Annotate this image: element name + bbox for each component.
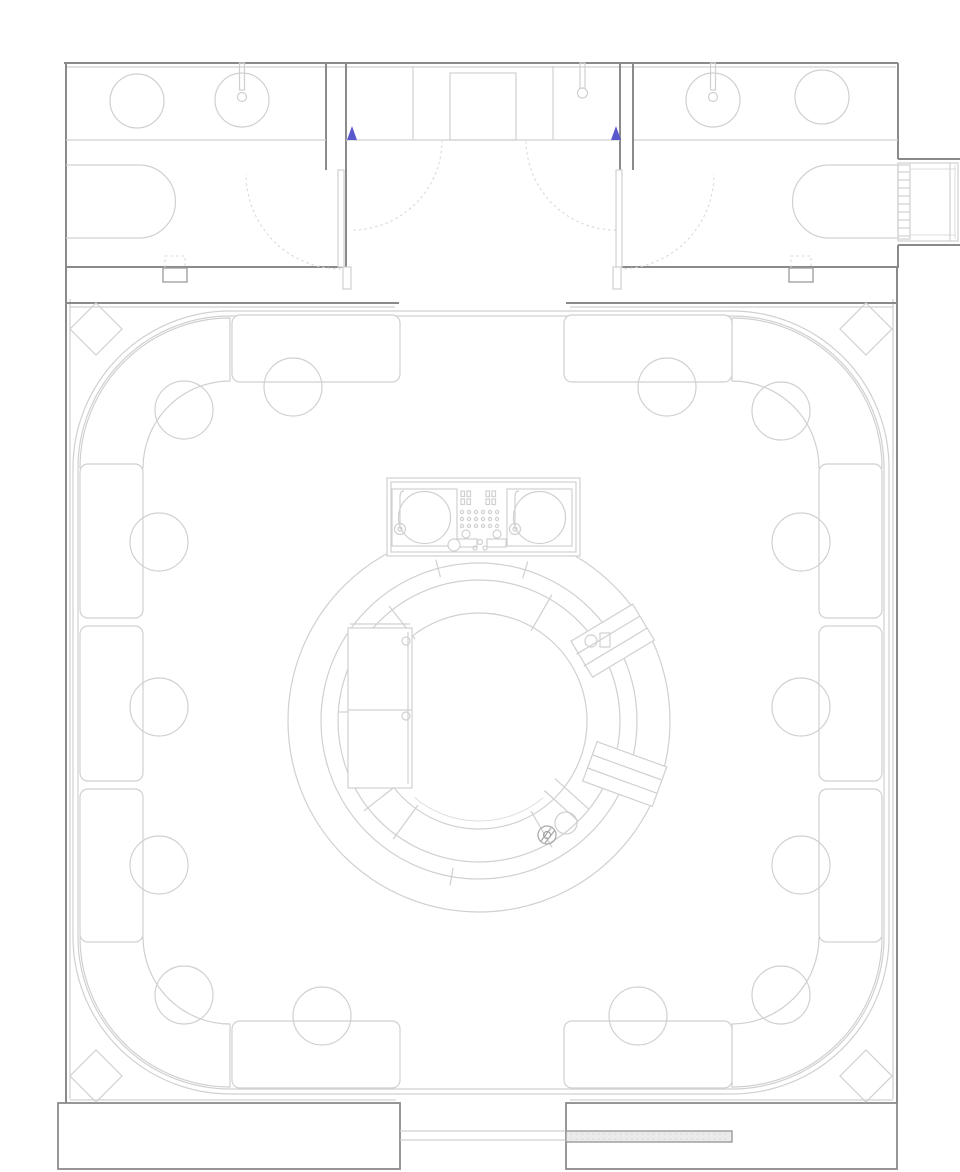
- back-bar-cabinet: [348, 628, 412, 788]
- floor-plan-page: [0, 0, 960, 1172]
- flip-counter-panel: [583, 742, 667, 807]
- dj-booth: [387, 478, 580, 556]
- shaft-box: [450, 73, 516, 140]
- stair-passage: [898, 159, 960, 245]
- corner-bench: [732, 318, 882, 468]
- bar-sink: [555, 812, 577, 834]
- wall-niche: [789, 268, 813, 282]
- door-swing-arc: [352, 140, 442, 230]
- door-leaf: [338, 170, 344, 267]
- bench-module: [80, 626, 143, 781]
- door-swing-arc: [619, 174, 714, 269]
- entrance-threshold: [400, 1131, 566, 1140]
- faucet-knob: [238, 93, 247, 102]
- floor-plan-drawing: [0, 0, 960, 1172]
- faucet-knob: [709, 93, 718, 102]
- wall-niche: [163, 268, 187, 282]
- bathtub: [66, 165, 175, 238]
- tables: [130, 358, 830, 1045]
- door-jamb: [613, 267, 621, 289]
- door-swing-arc: [526, 140, 616, 230]
- bench-module: [80, 464, 143, 618]
- bench-module: [232, 315, 400, 382]
- bench-module: [819, 626, 882, 781]
- bench-modules: [80, 315, 882, 1088]
- column-diamond: [840, 1050, 892, 1102]
- door-hinge-marker-left: [347, 126, 357, 140]
- turntable-left: [392, 489, 457, 546]
- segment-divider: [393, 805, 418, 839]
- restroom-right: [616, 63, 898, 282]
- door-jamb: [343, 267, 351, 289]
- bottom-wall-block-left: [58, 1103, 400, 1169]
- column-diamond: [70, 1050, 122, 1102]
- cable-grommet: [448, 539, 460, 551]
- bar-circle-r191: [288, 530, 670, 912]
- door-swing-arc: [246, 174, 341, 269]
- turntable-body: [392, 489, 457, 546]
- rail-body: [566, 1131, 732, 1142]
- bathtub: [793, 165, 899, 238]
- columns: [70, 303, 892, 1102]
- segment-divider: [364, 785, 397, 811]
- turntable-right: [507, 489, 572, 546]
- bench-module: [819, 789, 882, 942]
- queue-rail: [566, 1131, 732, 1142]
- entry-vestibule: [346, 63, 621, 266]
- back-bar: [338, 624, 412, 788]
- bench-back-inner-line: [78, 316, 884, 1089]
- bench-module: [564, 315, 732, 382]
- upper-rooms: [64, 63, 960, 282]
- bench-module: [232, 1021, 400, 1088]
- faucet-knob: [578, 88, 588, 98]
- bench-module: [564, 1021, 732, 1088]
- stair-treads: [898, 172, 910, 236]
- flip-counter-panel: [571, 604, 654, 677]
- turntable-body: [507, 489, 572, 546]
- flip-counter-lower: [583, 742, 667, 807]
- banquette-ring: [73, 311, 889, 1094]
- bench-module: [819, 464, 882, 618]
- passage-outline: [898, 163, 958, 241]
- segment-divider: [531, 595, 552, 631]
- corner-bench: [732, 937, 882, 1087]
- sink-basin: [215, 73, 269, 127]
- stool: [795, 70, 849, 124]
- inner-shelf-arc: [415, 798, 544, 821]
- bench-module: [80, 789, 143, 942]
- restroom-left: [66, 63, 347, 282]
- stool: [110, 74, 164, 128]
- door-leaf: [616, 170, 622, 267]
- column-diamond: [840, 303, 892, 355]
- flip-counter-upper: [571, 604, 654, 677]
- bench-back-outer-line: [73, 311, 889, 1094]
- circular-bar: [288, 530, 670, 912]
- sink-basin: [686, 73, 740, 127]
- column-diamond: [70, 303, 122, 355]
- bar-counter-circles: [288, 530, 670, 912]
